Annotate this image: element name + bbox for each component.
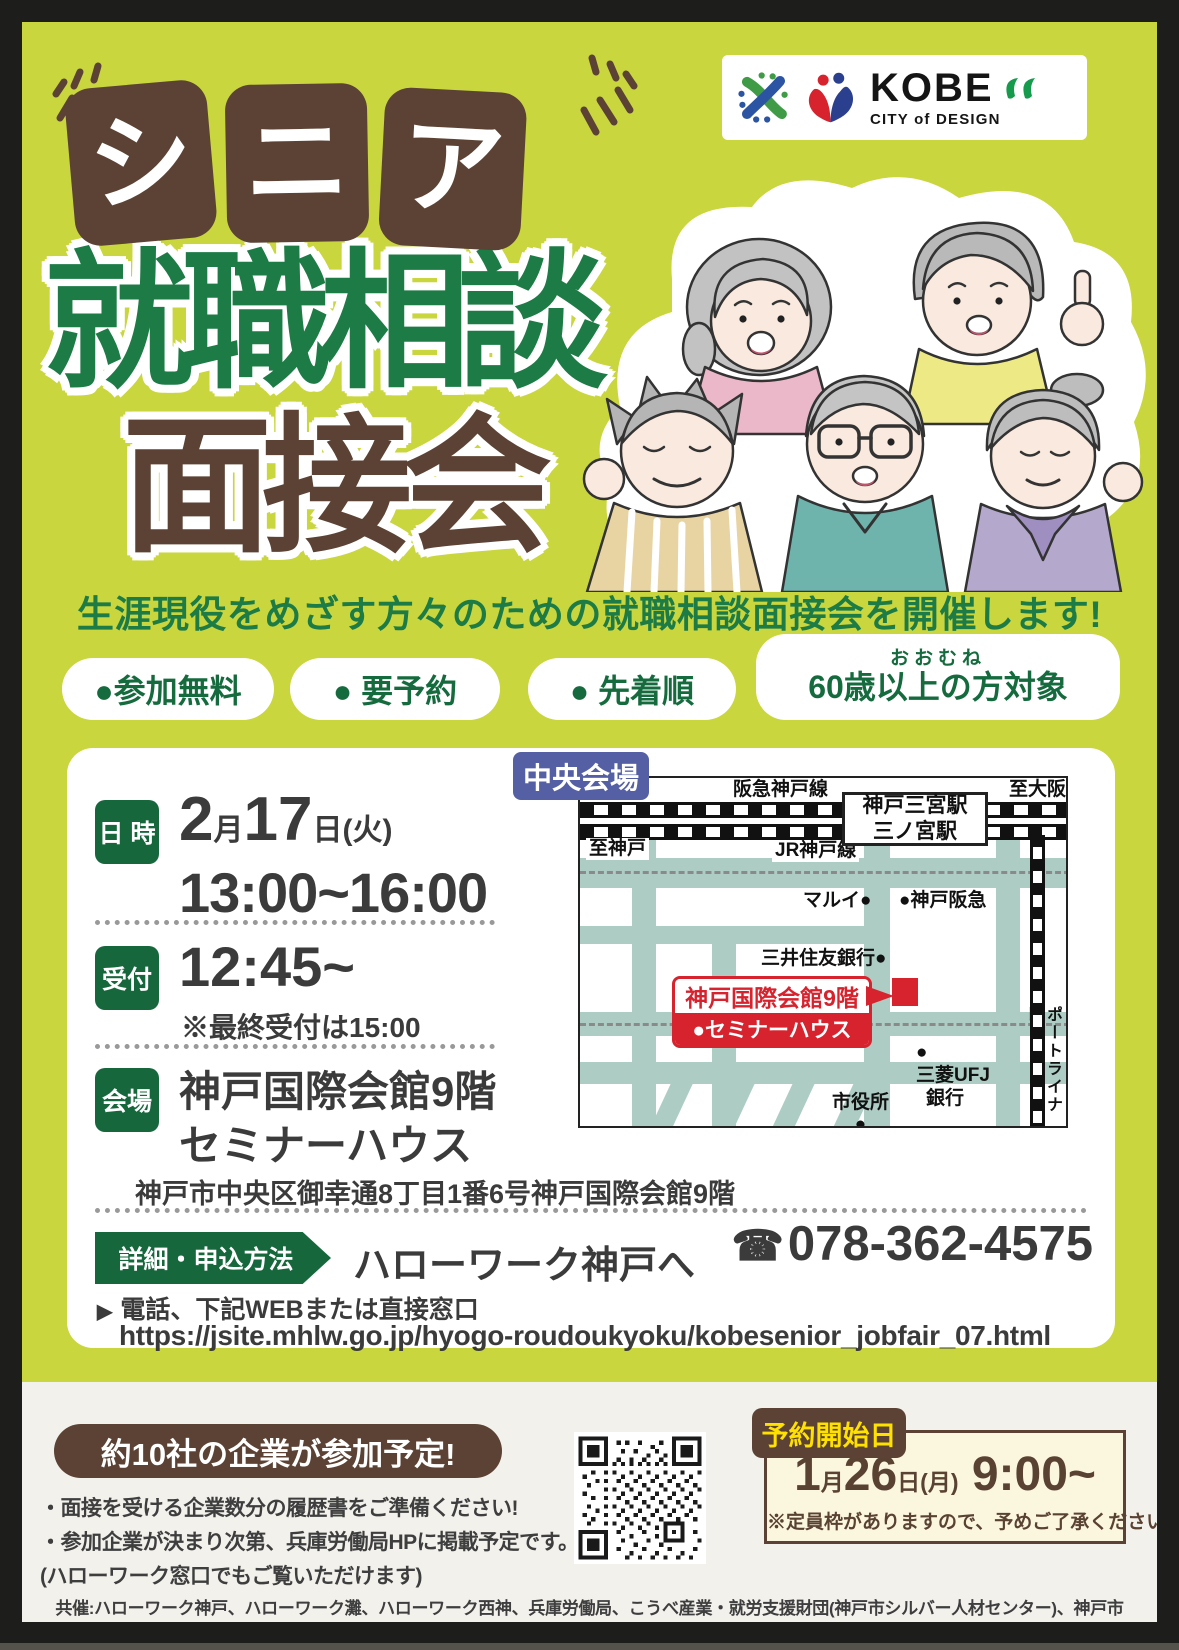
map-label-cityhall-dot: ● xyxy=(832,1114,889,1128)
viewer-frame: KOBE CITY of DESIGN xyxy=(0,0,1179,1650)
info-card: 日 時 2月17日(火) 13:00~16:00 受付 12:45~ ※最終受付… xyxy=(67,748,1115,1348)
rsv-month-unit: 月 xyxy=(821,1469,844,1495)
date-day-unit: 日 xyxy=(312,814,342,847)
badge-first-come: ● 先着順 xyxy=(528,658,736,720)
title-line1: 就職相談 xyxy=(44,244,596,402)
companies-badge: 約10社の企業が参加予定! xyxy=(54,1424,502,1478)
title-senior-box-1: シ xyxy=(63,78,218,248)
badge-age-ruby: おおむね xyxy=(890,649,986,670)
title-char: シ xyxy=(85,107,198,220)
map-road xyxy=(580,926,890,944)
title-line2: 面接会 xyxy=(122,408,542,566)
divider xyxy=(95,1208,1087,1213)
viewer-bottom-strip xyxy=(0,1643,1179,1650)
map-label-mufg-line2: 銀行 xyxy=(916,1088,990,1111)
map-label-mufg-dot: ● xyxy=(916,1042,990,1065)
triangle-bullet-icon: ▶ xyxy=(97,1301,112,1323)
divider xyxy=(95,920,495,925)
event-time: 13:00~16:00 xyxy=(179,860,487,925)
reception-note: ※最終受付は15:00 xyxy=(181,1006,421,1046)
reservation-note: ※定員枠がありますので、予めご了承ください。 xyxy=(767,1507,1123,1534)
map-venue-marker xyxy=(892,978,918,1006)
map-road xyxy=(580,1062,1068,1084)
logo-bar: KOBE CITY of DESIGN xyxy=(722,55,1087,140)
event-date: 2月17日(火) xyxy=(179,784,392,855)
date-month-num: 2 xyxy=(179,785,213,854)
apply-method-badge: 詳細・申込方法 xyxy=(95,1232,331,1284)
map-venue-callout: 神戸国際会館9階 ●セミナーハウス xyxy=(672,976,872,1048)
hellowork-logo-icon xyxy=(736,70,791,125)
map-label-smbc: 三井住友銀行● xyxy=(758,948,889,970)
map-label-marui: マルイ● xyxy=(800,890,874,912)
badge-reservation-required: ● 要予約 xyxy=(290,658,500,720)
hankyu-railway-line xyxy=(580,802,1068,818)
datetime-tag: 日 時 xyxy=(95,800,159,864)
map-venue-badge: 中央会場 xyxy=(513,752,649,800)
date-month-unit: 月 xyxy=(213,814,243,847)
note-item-1: ・面接を受ける企業数分の履歴書をご準備ください! xyxy=(40,1492,579,1526)
rsv-time: 9:00~ xyxy=(958,1448,1095,1501)
badge-age-label: 60歳以上の方対象 xyxy=(808,670,1068,705)
map-label-cityhall: 市役所 ● xyxy=(832,1092,889,1128)
badge-age-target: おおむね 60歳以上の方対象 xyxy=(756,634,1120,720)
date-day-num: 17 xyxy=(243,785,312,854)
note-item-2: ・参加企業が決まり次第、兵庫労働局HPに掲載予定です。 xyxy=(40,1526,579,1560)
venue-tag: 会場 xyxy=(95,1068,159,1132)
apply-target: ハローワーク神戸へ xyxy=(353,1234,695,1289)
notes-list: ・面接を受ける企業数分の履歴書をご準備ください! ・参加企業が決まり次第、兵庫労… xyxy=(40,1492,579,1594)
title-senior: シ ニ ア xyxy=(70,84,524,242)
date-weekday: (火) xyxy=(342,814,392,847)
kobe-logo-text: KOBE xyxy=(870,68,994,108)
phone-number-text: 078-362-4575 xyxy=(788,1217,1093,1271)
seniors-illustration xyxy=(577,174,1157,592)
map-station-line2: 三ノ宮駅 xyxy=(873,819,957,845)
venue-name-line1: 神戸国際会館9階 xyxy=(179,1058,496,1119)
title-char: ア xyxy=(398,114,507,223)
divider xyxy=(95,1044,495,1049)
phone-icon: ☎ xyxy=(732,1222,784,1269)
map-station-box: 神戸三宮駅 三ノ宮駅 xyxy=(842,792,988,846)
note-item-3: (ハローワーク窓口でもご覧いただけます) xyxy=(40,1560,579,1594)
map-label-mufg: ● 三菱UFJ 銀行 xyxy=(916,1042,990,1110)
kobe-logo-subtitle: CITY of DESIGN xyxy=(870,111,1040,128)
badge-free: ●参加無料 xyxy=(62,658,274,720)
kobe-logo: KOBE CITY of DESIGN xyxy=(870,68,1040,128)
map-label-mufg-line1: 三菱UFJ xyxy=(916,1065,990,1088)
title-char: ニ xyxy=(244,110,350,216)
map-label-cityhall-text: 市役所 xyxy=(832,1092,889,1114)
organizers-line: 共催:ハローワーク神戸、ハローワーク灘、ハローワーク西神、兵庫労働局、こうべ産業… xyxy=(22,1594,1157,1619)
title-senior-box-2: ニ xyxy=(225,83,370,243)
reception-tag: 受付 xyxy=(95,946,159,1010)
bottom-section: 約10社の企業が参加予定! ・面接を受ける企業数分の履歴書をご準備ください! ・… xyxy=(22,1382,1157,1622)
reception-time: 12:45~ xyxy=(179,934,355,999)
access-map: 阪急神戸線 至大阪 神戸三宮駅 三ノ宮駅 至神戸 JR神戸線 マルイ● ●神戸阪… xyxy=(578,776,1068,1128)
kobe-logo-glyph-icon xyxy=(1000,72,1040,104)
spark-lines-right-icon xyxy=(562,48,640,140)
map-venue-callout-line1: 神戸国際会館9階 xyxy=(675,979,869,1013)
headline: 生涯現役をめざす方々のための就職相談面接会を開催します! xyxy=(22,584,1157,638)
map-label-to-kobe: 至神戸 xyxy=(586,838,649,860)
map-label-portliner: ポートライナー xyxy=(1016,1006,1064,1126)
venue-name-line2: セミナーハウス xyxy=(179,1112,472,1173)
jr-railway-line xyxy=(580,824,1068,840)
map-venue-callout-line2: ●セミナーハウス xyxy=(675,1013,869,1045)
flyer-page: KOBE CITY of DESIGN xyxy=(22,22,1157,1622)
map-label-hankyu-line: 阪急神戸線 xyxy=(730,779,831,801)
reservation-start-badge: 予約開始日 xyxy=(752,1408,906,1458)
map-label-kobe-hankyu: ●神戸阪急 xyxy=(896,890,989,912)
rsv-day-unit: 日(月) xyxy=(897,1469,958,1495)
map-road-centerline xyxy=(580,871,1068,874)
map-label-to-osaka: 至大阪 xyxy=(1006,779,1068,801)
heart-people-logo-icon xyxy=(803,70,858,125)
title-senior-box-3: ア xyxy=(378,86,528,251)
phone-number: ☎078-362-4575 xyxy=(732,1216,1093,1272)
venue-address: 神戸市中央区御幸通8丁目1番6号神戸国際会館9階 xyxy=(135,1172,735,1211)
qr-code xyxy=(574,1432,706,1564)
apply-url: https://jsite.mhlw.go.jp/hyogo-roudoukyo… xyxy=(119,1320,1051,1352)
map-station-line1: 神戸三宮駅 xyxy=(863,793,968,819)
